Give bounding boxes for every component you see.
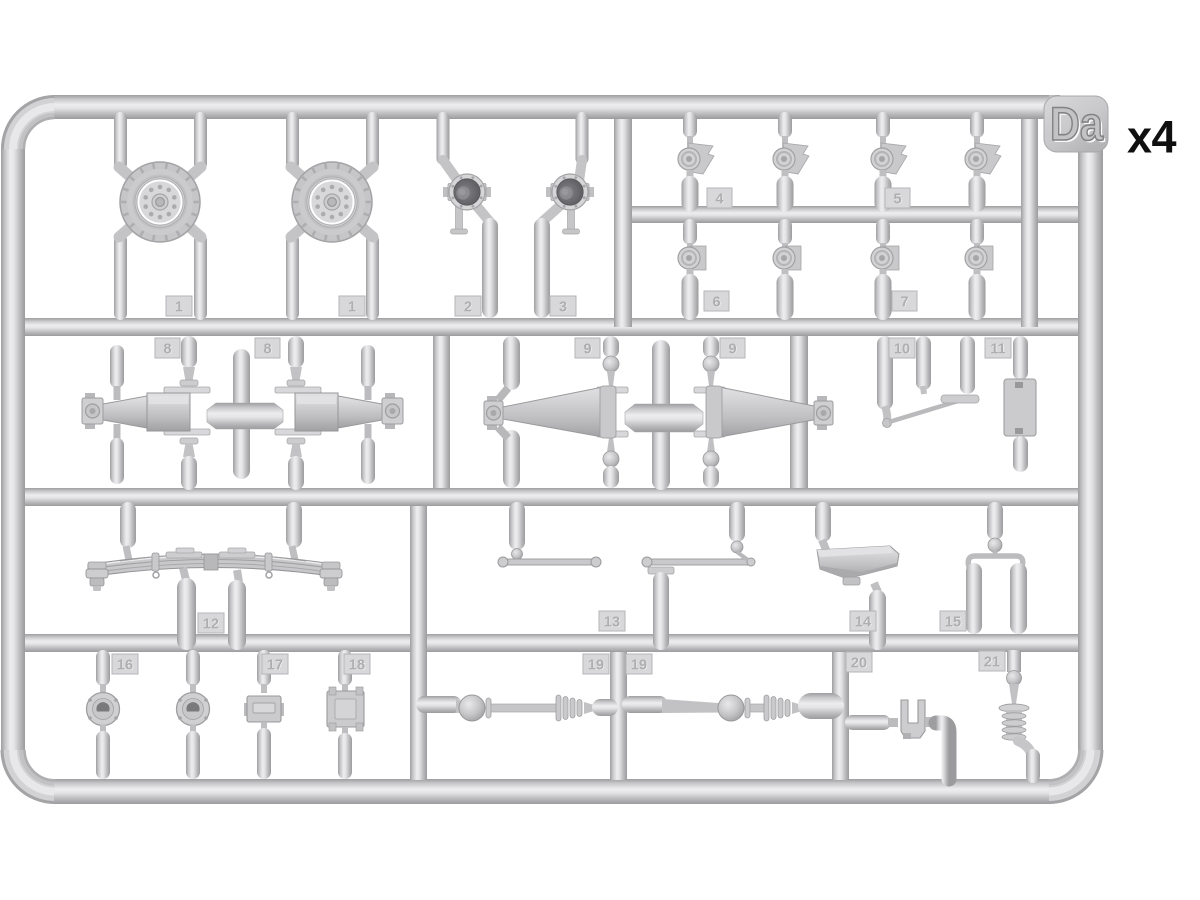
svg-text:18: 18 (349, 658, 365, 674)
svg-text:19: 19 (588, 658, 604, 674)
svg-text:Da: Da (1050, 97, 1104, 150)
svg-text:5: 5 (893, 192, 901, 208)
svg-text:21: 21 (984, 655, 1000, 671)
svg-text:10: 10 (894, 342, 910, 358)
svg-text:8: 8 (163, 342, 171, 358)
svg-text:12: 12 (203, 617, 219, 633)
svg-text:13: 13 (604, 615, 620, 631)
svg-text:9: 9 (728, 342, 736, 358)
svg-text:14: 14 (855, 615, 871, 631)
svg-text:8: 8 (263, 342, 271, 358)
svg-text:20: 20 (851, 656, 867, 672)
svg-text:2: 2 (464, 300, 472, 316)
svg-text:7: 7 (900, 295, 908, 311)
svg-text:1: 1 (175, 300, 183, 316)
svg-text:9: 9 (583, 342, 591, 358)
svg-text:x4: x4 (1127, 112, 1177, 163)
svg-text:17: 17 (267, 658, 283, 674)
svg-text:1: 1 (348, 300, 356, 316)
svg-text:19: 19 (631, 658, 647, 674)
svg-text:3: 3 (559, 300, 567, 316)
svg-text:11: 11 (990, 342, 1005, 358)
svg-text:15: 15 (945, 615, 961, 631)
svg-text:4: 4 (715, 192, 723, 208)
svg-text:16: 16 (117, 658, 133, 674)
svg-text:6: 6 (712, 295, 720, 311)
